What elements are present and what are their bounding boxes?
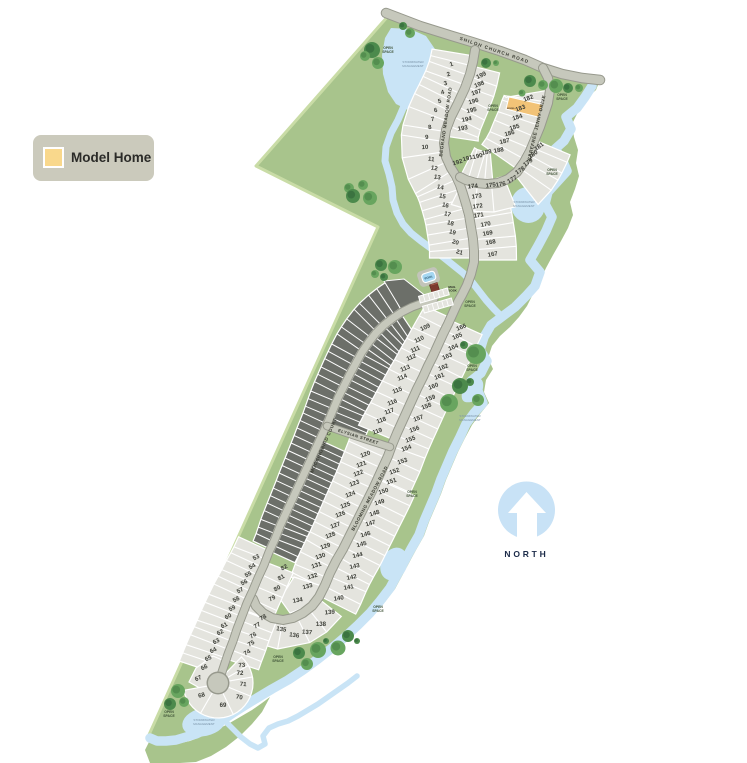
svg-text:SPACE: SPACE <box>466 368 478 372</box>
svg-text:69: 69 <box>220 702 227 709</box>
svg-text:MANAGEMENT: MANAGEMENT <box>459 418 481 422</box>
svg-text:SPACE: SPACE <box>382 50 394 54</box>
svg-text:173: 173 <box>471 192 483 200</box>
svg-text:Model Home: Model Home <box>71 150 152 165</box>
svg-text:140: 140 <box>333 594 345 602</box>
svg-text:SPACE: SPACE <box>272 659 284 663</box>
svg-text:MANAGEMENT: MANAGEMENT <box>402 64 424 68</box>
svg-text:139: 139 <box>324 609 335 617</box>
svg-text:SPACE: SPACE <box>487 108 499 112</box>
svg-text:73: 73 <box>238 662 246 670</box>
svg-text:SPACE: SPACE <box>163 714 175 718</box>
svg-text:171: 171 <box>473 211 485 219</box>
svg-text:137: 137 <box>302 629 313 637</box>
svg-text:71: 71 <box>239 681 247 689</box>
svg-text:SPACE: SPACE <box>556 97 568 101</box>
svg-text:SPACE: SPACE <box>464 304 476 308</box>
svg-text:138: 138 <box>316 621 327 628</box>
svg-text:174: 174 <box>467 183 478 191</box>
svg-text:10: 10 <box>421 144 429 151</box>
svg-text:SPACE: SPACE <box>406 494 418 498</box>
svg-text:MANAGEMENT: MANAGEMENT <box>513 204 535 208</box>
svg-text:SPACE: SPACE <box>546 172 558 176</box>
svg-text:MANAGEMENT: MANAGEMENT <box>193 722 215 726</box>
svg-text:72: 72 <box>237 670 244 677</box>
svg-text:NORTH: NORTH <box>504 549 548 559</box>
svg-text:SPACE: SPACE <box>372 609 384 613</box>
svg-text:136: 136 <box>289 631 301 639</box>
svg-text:172: 172 <box>472 202 484 210</box>
